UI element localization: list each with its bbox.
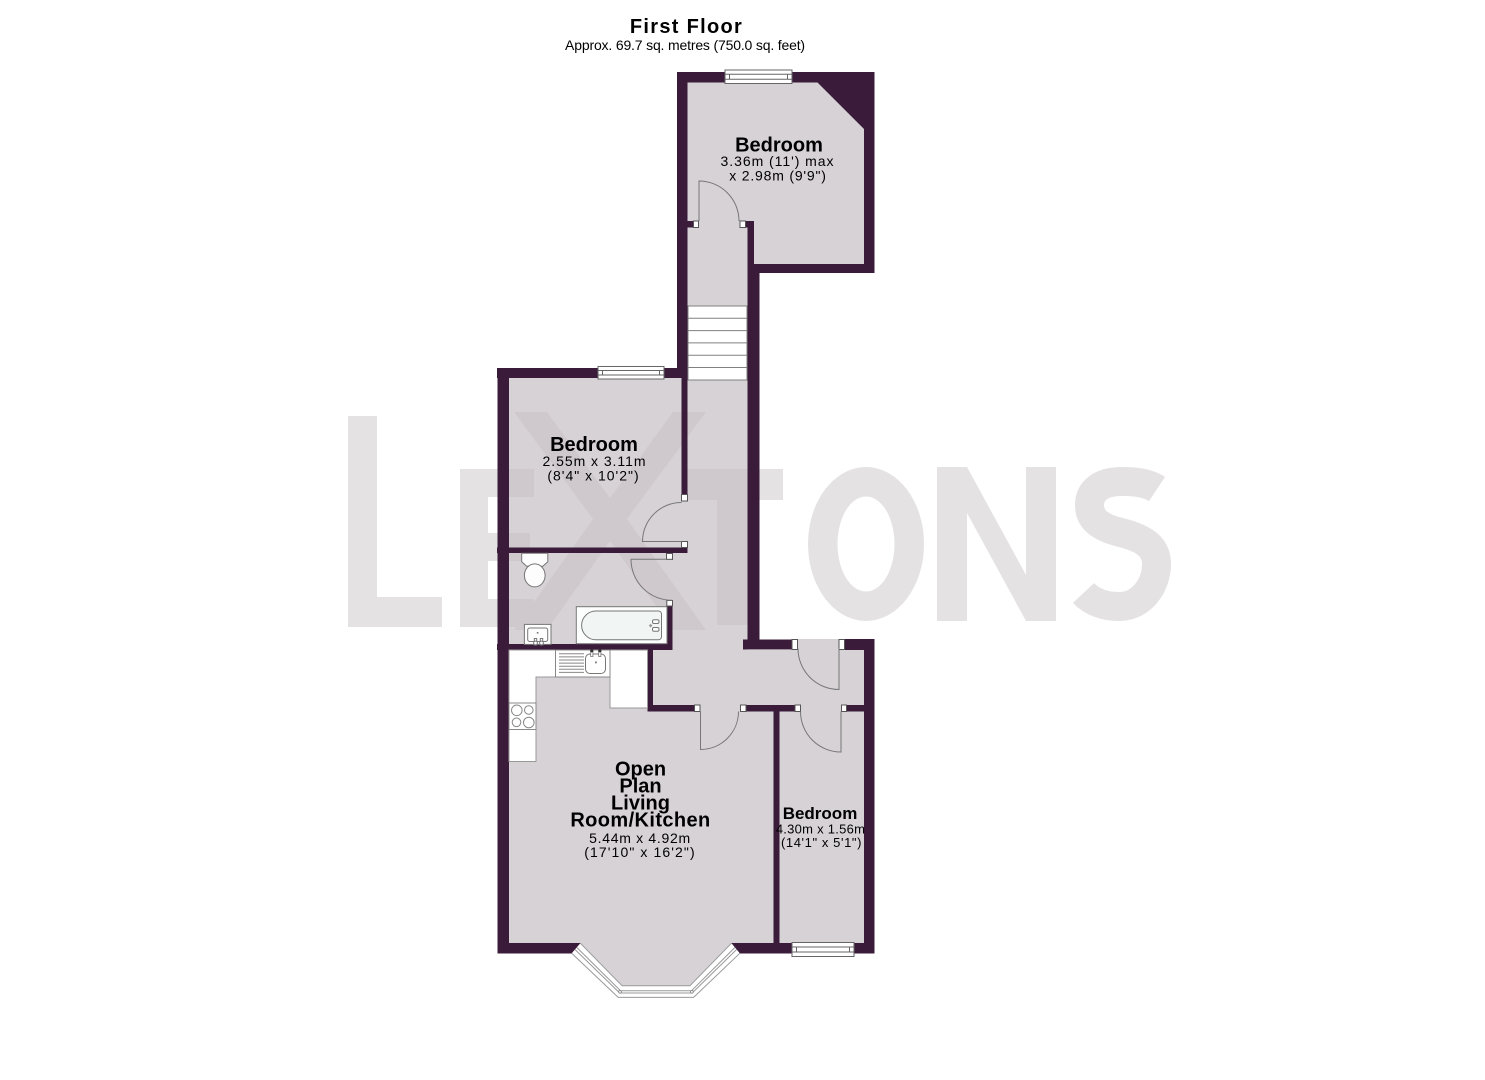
svg-text:(8'4" x 10'2"): (8'4" x 10'2") [547,468,639,484]
svg-text:First Floor: First Floor [630,16,743,38]
svg-text:Room/Kitchen: Room/Kitchen [570,810,710,832]
svg-text:Bedroom: Bedroom [783,804,858,823]
svg-text:(17'10" x 16'2"): (17'10" x 16'2") [584,844,696,860]
svg-text:Approx. 69.7 sq. metres (750.0: Approx. 69.7 sq. metres (750.0 sq. feet) [565,37,805,53]
svg-text:x 2.98m (9'9"): x 2.98m (9'9") [729,168,826,184]
svg-text:(14'1" x 5'1"): (14'1" x 5'1") [781,835,862,850]
